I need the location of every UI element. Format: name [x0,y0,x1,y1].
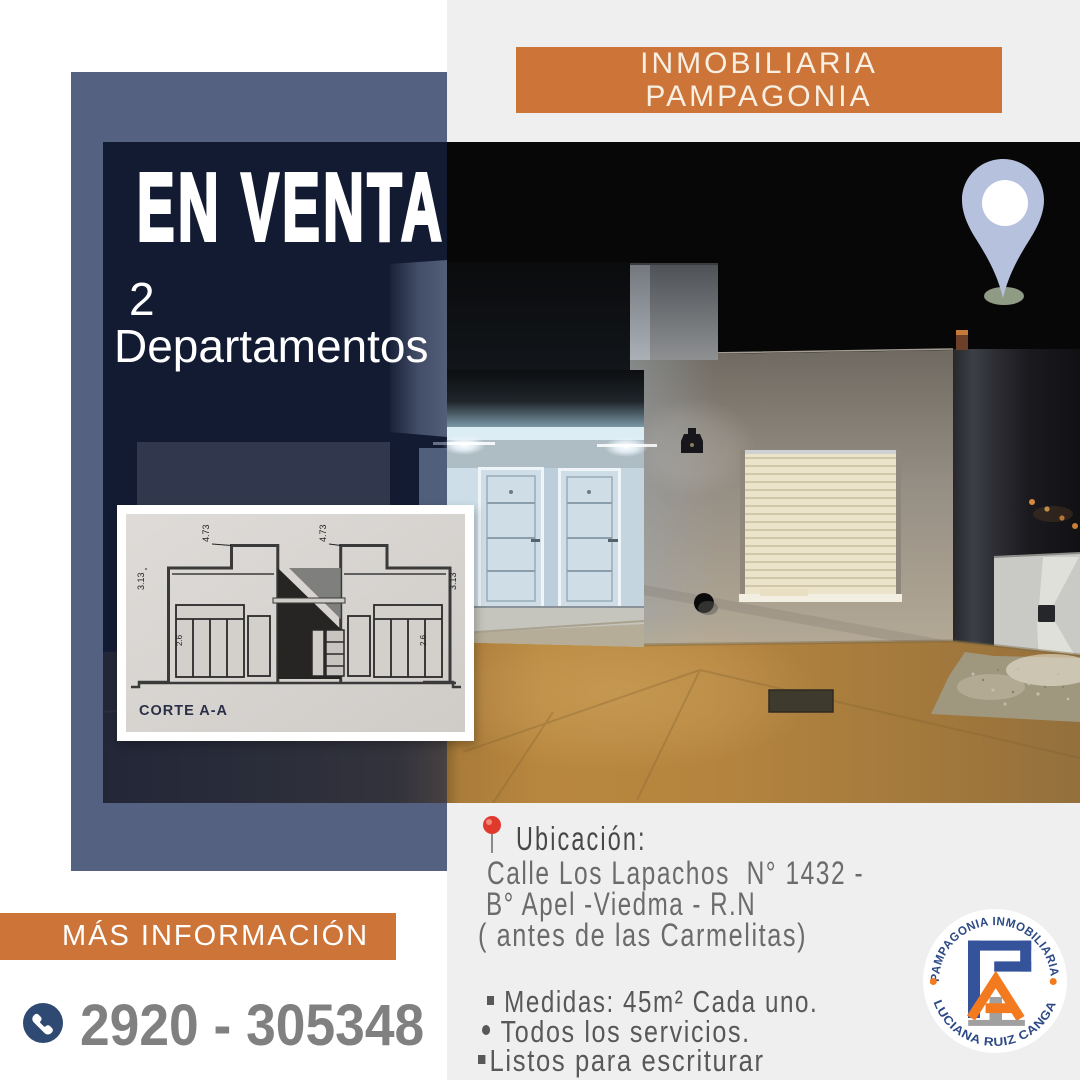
svg-text:3.13: 3.13 [448,572,458,590]
svg-text:2.6: 2.6 [419,634,428,646]
svg-text:4.73: 4.73 [201,524,211,542]
svg-text:3.13: 3.13 [136,572,146,590]
svg-text:2.6: 2.6 [175,634,184,646]
svg-text:4.73: 4.73 [318,524,328,542]
svg-text:CORTE A-A: CORTE A-A [139,703,228,719]
